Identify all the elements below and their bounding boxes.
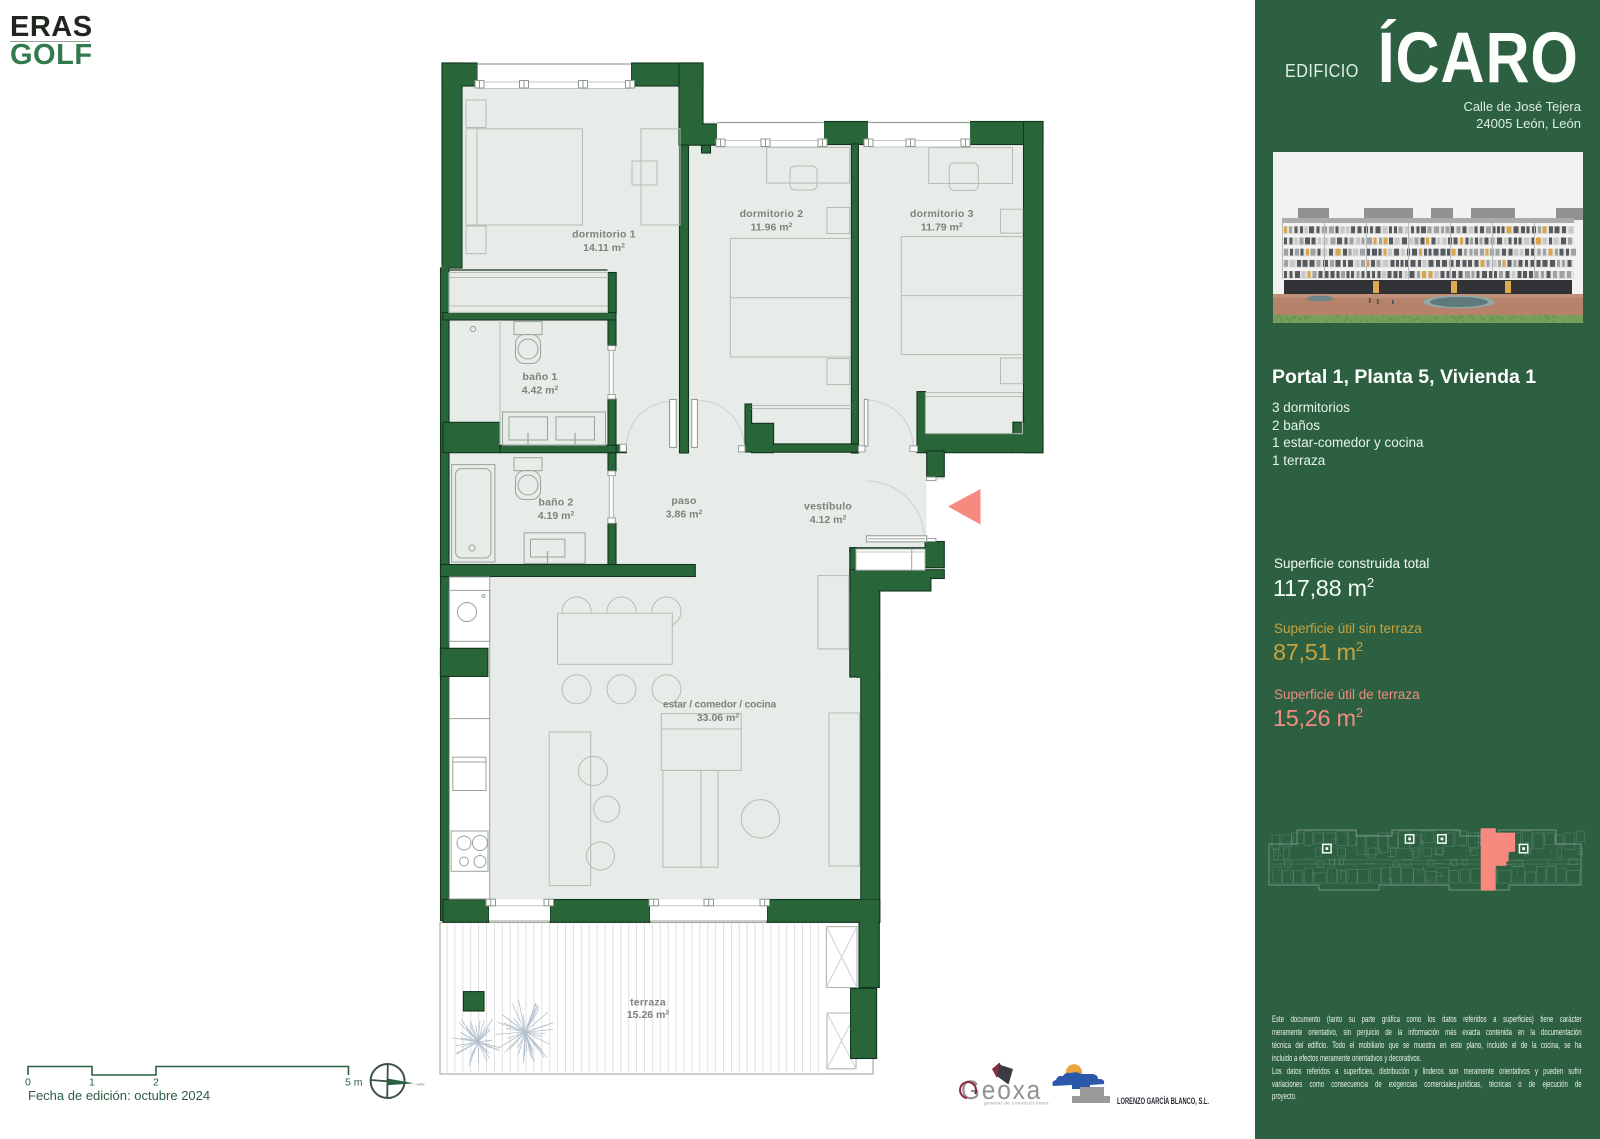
svg-text:paso: paso [671,495,696,507]
svg-text:1: 1 [89,1077,95,1089]
svg-text:baño 2: baño 2 [538,497,573,509]
svg-text:LORENZO GARCÍA BLANCO, S.L.: LORENZO GARCÍA BLANCO, S.L. [1117,1096,1209,1107]
svg-text:4.19 m2: 4.19 m2 [538,510,575,522]
svg-text:14.11 m2: 14.11 m2 [583,242,625,254]
svg-text:4.42 m2: 4.42 m2 [522,385,559,397]
svg-text:5 m: 5 m [345,1077,363,1089]
svg-text:11.79 m2: 11.79 m2 [921,222,963,234]
svg-text:3.86 m2: 3.86 m2 [666,509,703,521]
svg-text:baño 1: baño 1 [522,371,557,383]
svg-text:4.12 m2: 4.12 m2 [810,514,847,526]
svg-text:0: 0 [25,1077,31,1089]
svg-text:Fecha de edición: octubre 2024: Fecha de edición: octubre 2024 [28,1088,210,1103]
svg-text:dormitorio 2: dormitorio 2 [740,208,804,220]
svg-text:dormitorio 1: dormitorio 1 [572,229,636,241]
svg-text:dormitorio 3: dormitorio 3 [910,208,974,220]
svg-text:general de construcciones: general de construcciones [984,1101,1049,1106]
svg-text:terraza: terraza [630,997,666,1009]
svg-text:33.06 m2: 33.06 m2 [697,712,740,724]
svg-text:2: 2 [153,1077,159,1089]
svg-text:vestíbulo: vestíbulo [804,501,852,513]
svg-text:norte: norte [416,1081,426,1086]
svg-text:11.96 m2: 11.96 m2 [751,222,793,234]
svg-text:estar / comedor / cocina: estar / comedor / cocina [663,700,777,711]
svg-text:15.26 m2: 15.26 m2 [627,1009,670,1021]
